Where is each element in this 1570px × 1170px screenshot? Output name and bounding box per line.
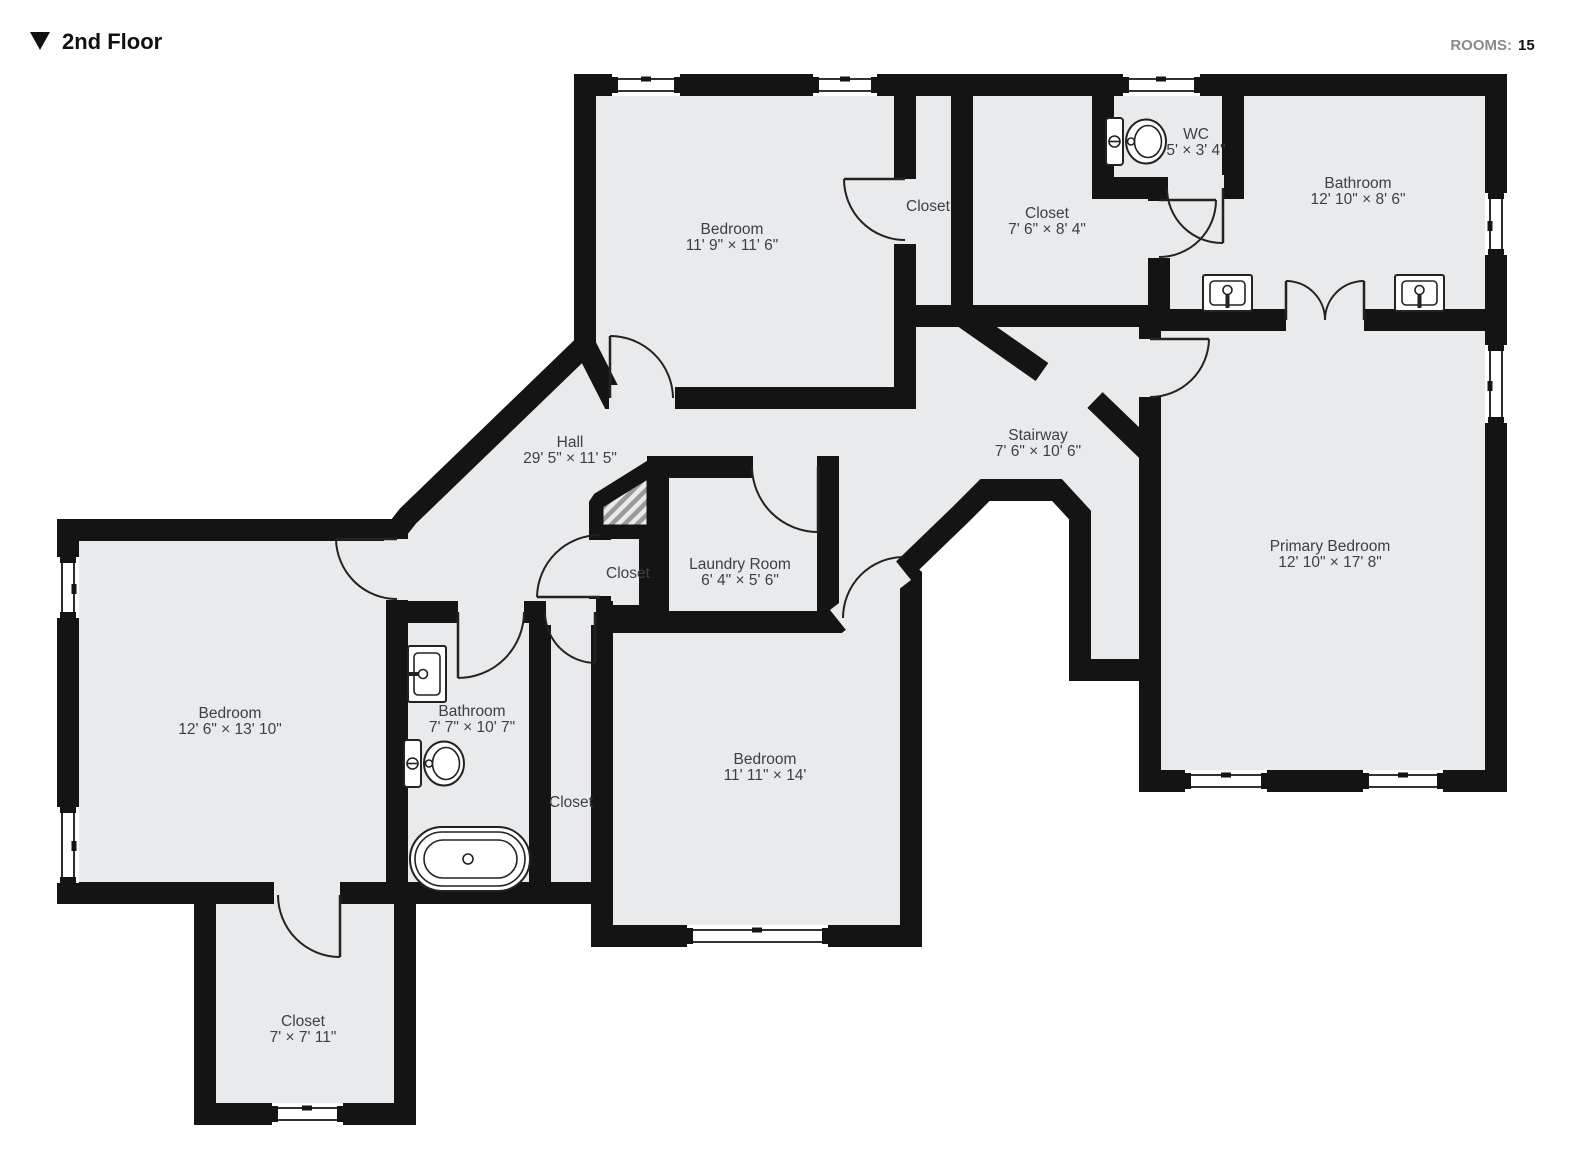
room-dims: 29' 5" × 11' 5": [523, 450, 617, 467]
room-label: Bathroom: [1324, 175, 1391, 192]
window: [272, 1103, 343, 1125]
window: [612, 74, 680, 96]
room-dims: 5' × 3' 4": [1166, 142, 1225, 159]
sink-icon: [1203, 275, 1252, 311]
room-label: Closet: [281, 1013, 326, 1030]
window: [57, 557, 79, 618]
room-label: Bedroom: [701, 221, 764, 238]
room-dims: 12' 10" × 8' 6": [1311, 191, 1406, 208]
sink-icon: [1395, 275, 1444, 311]
collapse-triangle-icon[interactable]: [30, 32, 50, 50]
room-label: Bedroom: [734, 751, 797, 768]
toilet-icon: [1106, 118, 1166, 165]
window: [1123, 74, 1200, 96]
room-dims: 11' 9" × 11' 6": [686, 237, 779, 254]
room-label: Closet: [1025, 205, 1070, 222]
window: [1485, 193, 1507, 255]
toilet-icon: [404, 740, 464, 787]
room-label: Stairway: [1008, 427, 1068, 444]
window: [1485, 345, 1507, 423]
room-label: Laundry Room: [689, 556, 791, 573]
window: [687, 925, 828, 947]
room-label: Bedroom: [199, 705, 262, 722]
floor-plan-page: 2nd Floor ROOMS: 15: [0, 0, 1570, 1170]
floor-plan-canvas: 2nd Floor ROOMS: 15: [0, 0, 1570, 1170]
room-label: Closet: [606, 565, 651, 582]
room-label: Closet: [549, 794, 594, 811]
room-dims: 7' 6" × 10' 6": [995, 443, 1081, 460]
room-label: Closet: [906, 198, 951, 215]
room-dims: 7' 7" × 10' 7": [429, 719, 515, 736]
room-dims: 12' 10" × 17' 8": [1278, 554, 1382, 571]
window: [1185, 770, 1267, 792]
room-dims: 7' × 7' 11": [270, 1029, 337, 1046]
room-label: Bathroom: [438, 703, 505, 720]
window: [1363, 770, 1443, 792]
window: [813, 74, 877, 96]
rooms-count-label: ROOMS:: [1450, 37, 1512, 54]
rooms-count-value: 15: [1518, 37, 1535, 54]
room-dims: 11' 11" × 14': [724, 767, 807, 784]
room-label: Hall: [557, 434, 584, 451]
header: 2nd Floor ROOMS: 15: [30, 29, 1535, 54]
sink-icon: [408, 646, 446, 702]
room-dims: 12' 6" × 13' 10": [178, 721, 282, 738]
room-label: WC: [1183, 126, 1209, 143]
floor-title[interactable]: 2nd Floor: [62, 29, 163, 54]
room-dims: 7' 6" × 8' 4": [1008, 221, 1086, 238]
window: [57, 807, 79, 883]
room-label: Primary Bedroom: [1270, 538, 1391, 555]
room-dims: 6' 4" × 5' 6": [701, 572, 779, 589]
bathtub-icon: [410, 827, 530, 891]
room-closet-bottom-left[interactable]: [205, 893, 405, 1114]
room-laundry[interactable]: [658, 467, 828, 622]
